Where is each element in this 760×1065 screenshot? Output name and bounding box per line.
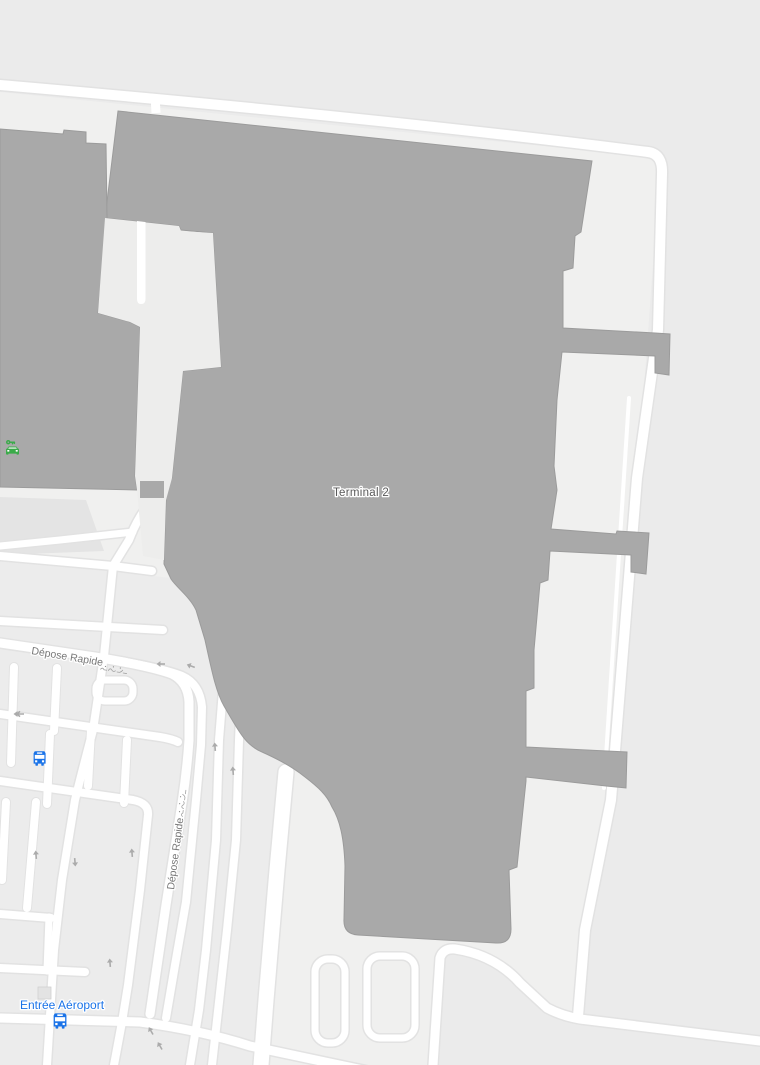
svg-text:Terminal 2: Terminal 2: [333, 487, 389, 499]
svg-text:Entrée Aéroport: Entrée Aéroport: [20, 998, 105, 1012]
